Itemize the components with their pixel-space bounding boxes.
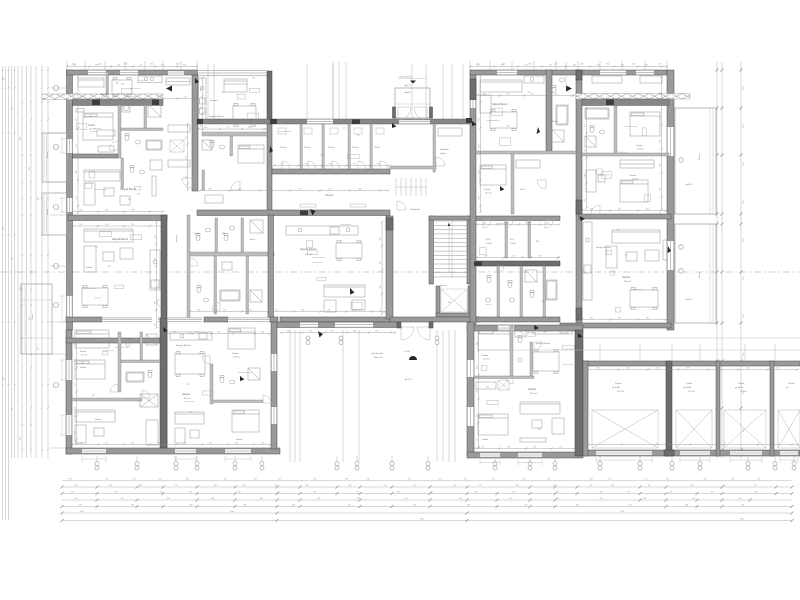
svg-text:213: 213 [585,199,587,202]
svg-text:421: 421 [131,224,134,226]
svg-text:177: 177 [137,400,140,402]
svg-text:106: 106 [357,135,360,137]
svg-text:124: 124 [538,429,541,431]
svg-text:511: 511 [249,310,252,312]
svg-text:357: 357 [556,498,559,500]
svg-text:239: 239 [477,366,479,369]
svg-text:tároló: tároló [440,152,446,155]
svg-text:218: 218 [75,407,77,410]
svg-text:367: 367 [711,491,714,493]
svg-text:396: 396 [585,174,587,177]
svg-text:352: 352 [201,107,203,110]
svg-text:176: 176 [76,197,78,200]
svg-text:WC: WC [222,233,226,235]
svg-text:189: 189 [261,332,264,334]
svg-text:Szoba: Szoba [236,439,243,441]
svg-text:192: 192 [309,331,312,333]
svg-text:171: 171 [226,127,229,129]
svg-text:394: 394 [248,127,251,129]
svg-text:422: 422 [738,498,741,500]
svg-text:372: 372 [507,94,510,96]
svg-text:396: 396 [327,310,330,312]
svg-text:177: 177 [298,189,301,191]
svg-text:307: 307 [648,485,651,487]
svg-text:◆ 0,00: ◆ 0,00 [405,91,411,94]
svg-text:323: 323 [79,443,82,445]
svg-text:273: 273 [183,65,186,67]
svg-text:lejtés 2%: lejtés 2% [374,356,382,359]
svg-text:12,4 m2: 12,4 m2 [483,359,490,361]
svg-text:388: 388 [20,137,22,140]
svg-text:369: 369 [525,223,528,225]
svg-text:389: 389 [486,386,489,388]
svg-text:± 0,00: ± 0,00 [404,351,411,353]
svg-text:507: 507 [155,258,157,261]
svg-text:Konyha Étkező: Konyha Étkező [596,246,611,249]
svg-text:302: 302 [691,485,694,487]
svg-text:537: 537 [268,189,271,191]
svg-text:2985: 2985 [230,511,234,513]
svg-text:Nappali Étkező: Nappali Étkező [209,115,224,118]
svg-text:344: 344 [621,65,624,67]
svg-text:179: 179 [175,485,178,487]
svg-text:265: 265 [173,332,176,334]
svg-text:488: 488 [358,189,361,191]
svg-text:532: 532 [79,504,82,506]
svg-text:142: 142 [479,93,481,96]
svg-text:306: 306 [599,491,602,493]
svg-text:119: 119 [549,65,552,67]
svg-text:324: 324 [238,189,241,191]
svg-text:370: 370 [660,140,662,143]
svg-text:335: 335 [645,65,648,67]
svg-text:139: 139 [353,310,356,312]
svg-text:205: 205 [221,92,224,94]
svg-text:Tároló: Tároló [686,382,693,385]
svg-text:Szoba: Szoba [630,175,637,177]
svg-text:464: 464 [555,94,558,96]
svg-text:242: 242 [585,149,587,152]
svg-text:Terasz: Terasz [699,154,701,160]
svg-text:133: 133 [731,479,734,481]
svg-text:352: 352 [12,257,14,260]
svg-text:330: 330 [353,331,356,333]
svg-text:267: 267 [92,395,95,397]
svg-text:294: 294 [608,479,611,481]
svg-text:467: 467 [646,209,649,211]
svg-text:Nappali: Nappali [182,394,190,396]
svg-text:157: 157 [477,65,480,67]
svg-text:323: 323 [464,479,467,481]
svg-text:312: 312 [743,162,745,166]
svg-text:Nappali: Nappali [528,389,536,391]
svg-text:126: 126 [105,479,108,481]
svg-text:Terasz: Terasz [31,314,34,320]
svg-text:341: 341 [546,223,549,225]
svg-text:177: 177 [343,128,346,130]
svg-text:32,5 m2: 32,5 m2 [305,254,313,256]
svg-text:620: 620 [214,485,217,487]
svg-text:607: 607 [408,479,411,481]
svg-text:376: 376 [741,504,744,506]
svg-text:196: 196 [75,485,78,487]
svg-text:Szoba: Szoba [80,367,87,369]
svg-text:Konyha Étkező: Konyha Étkező [176,344,191,347]
svg-text:147: 147 [209,443,212,445]
svg-text:107: 107 [186,384,189,386]
svg-text:473: 473 [479,485,482,487]
svg-text:552: 552 [611,485,614,487]
svg-text:Szoba: Szoba [88,124,95,127]
svg-text:325: 325 [523,479,526,481]
svg-text:11,8 m2: 11,8 m2 [233,357,239,359]
svg-text:507: 507 [79,224,82,226]
svg-text:191: 191 [524,504,527,506]
svg-text:212: 212 [531,94,534,96]
svg-text:12,6 m2: 12,6 m2 [632,179,639,181]
svg-text:341: 341 [660,116,662,119]
svg-text:172: 172 [105,443,108,445]
svg-text:498: 498 [237,491,240,493]
svg-text:158: 158 [626,368,629,370]
svg-text:173: 173 [492,479,495,481]
svg-text:312: 312 [743,314,745,318]
svg-text:202: 202 [384,485,387,487]
svg-text:◆ 0,00: ◆ 0,00 [686,298,692,301]
svg-text:609: 609 [109,485,112,487]
svg-text:283: 283 [573,65,576,67]
svg-text:439: 439 [507,447,510,449]
svg-text:222: 222 [477,438,479,441]
svg-text:231: 231 [3,77,5,80]
svg-text:316: 316 [73,65,76,67]
svg-text:4402: 4402 [420,518,424,520]
svg-text:366: 366 [76,171,78,174]
svg-text:297: 297 [525,65,528,67]
svg-text:556: 556 [160,491,163,493]
svg-text:312: 312 [743,238,745,242]
svg-text:276: 276 [479,145,481,148]
svg-text:Nappali Étkező: Nappali Étkező [112,238,129,241]
svg-text:236: 236 [618,209,621,211]
svg-text:Tároló: Tároló [352,146,359,149]
svg-text:Mosó: Mosó [250,239,256,241]
svg-text:310: 310 [131,443,134,445]
svg-text:448: 448 [533,447,536,449]
svg-text:Konyha Étkező: Konyha Étkező [536,342,551,345]
svg-text:226: 226 [757,479,760,481]
svg-text:292: 292 [161,65,164,67]
svg-text:142: 142 [541,301,544,303]
svg-text:575: 575 [357,498,360,500]
svg-text:251: 251 [660,92,662,95]
svg-text:452: 452 [75,431,77,434]
svg-text:382: 382 [79,210,82,212]
svg-text:419: 419 [3,227,5,230]
svg-text:Tároló: Tároló [486,243,493,245]
svg-text:471: 471 [331,331,334,333]
svg-text:607: 607 [254,479,257,481]
svg-text:Szoba: Szoba [95,419,102,421]
svg-text:28,4 m2: 28,4 m2 [624,281,632,283]
svg-text:383: 383 [660,164,662,167]
svg-text:432: 432 [223,479,226,481]
svg-text:154: 154 [547,479,550,481]
svg-text:Terasz: Terasz [47,209,49,215]
svg-text:134: 134 [356,491,359,493]
svg-text:gk.: gk. [786,387,789,389]
svg-text:368: 368 [479,197,481,200]
svg-text:505: 505 [483,223,486,225]
svg-text:478: 478 [191,333,194,335]
svg-text:567: 567 [629,504,632,506]
svg-text:124: 124 [512,256,515,258]
svg-text:453: 453 [235,443,238,445]
svg-text:276: 276 [305,164,308,166]
svg-text:24,2 m2: 24,2 m2 [184,398,191,400]
svg-text:325: 325 [117,65,120,67]
svg-text:312: 312 [743,352,745,356]
svg-text:186: 186 [155,302,157,305]
svg-text:172: 172 [217,332,220,334]
svg-text:197: 197 [666,479,669,481]
svg-text:318: 318 [260,498,263,500]
svg-text:180: 180 [477,390,479,393]
svg-text:354: 354 [660,212,662,215]
svg-text:291: 291 [80,97,83,99]
svg-text:224: 224 [287,331,290,333]
svg-text:357: 357 [223,310,226,312]
svg-text:3335: 3335 [80,511,84,513]
svg-text:201: 201 [643,498,646,500]
svg-text:◆ 0,15: ◆ 0,15 [405,378,412,381]
svg-text:459: 459 [329,164,332,166]
svg-text:359: 359 [686,368,689,370]
svg-text:Lift: Lift [448,301,451,304]
svg-text:246: 246 [176,64,180,66]
svg-text:Konyha: Konyha [210,100,218,102]
svg-text:344: 344 [106,97,109,99]
svg-text:394: 394 [197,310,200,312]
svg-text:246: 246 [528,64,532,66]
svg-text:185: 185 [692,498,695,500]
svg-text:159: 159 [320,154,323,156]
svg-text:454: 454 [121,498,124,500]
svg-text:Tároló: Tároló [280,146,287,149]
svg-text:272: 272 [553,485,556,487]
svg-text:225: 225 [413,485,416,487]
svg-text:507: 507 [239,332,242,334]
svg-text:176: 176 [29,167,31,170]
svg-text:183: 183 [477,342,479,345]
svg-text:540: 540 [590,318,593,320]
svg-text:449: 449 [167,498,170,500]
svg-text:365: 365 [348,485,351,487]
svg-text:141: 141 [328,189,331,191]
svg-text:150: 150 [625,254,628,256]
svg-text:Szoba: Szoba [482,439,489,441]
svg-text:Tároló: Tároló [374,146,381,149]
svg-text:297: 297 [559,447,562,449]
svg-text:373: 373 [375,331,378,333]
svg-text:458: 458 [211,498,214,500]
svg-text:◆ 0,15: ◆ 0,15 [405,84,411,87]
svg-text:299: 299 [243,504,246,506]
svg-text:325: 325 [76,119,78,122]
svg-text:566: 566 [576,504,579,506]
svg-text:Szoba: Szoba [636,145,643,147]
svg-text:112: 112 [155,236,157,239]
svg-text:Szoba: Szoba [80,351,87,353]
svg-text:338: 338 [121,84,124,86]
svg-text:15,9 m2: 15,9 m2 [617,391,624,393]
svg-text:246: 246 [658,64,662,66]
svg-text:246: 246 [150,64,154,66]
svg-text:306: 306 [139,485,142,487]
svg-text:407: 407 [29,317,31,320]
svg-text:390: 390 [453,485,456,487]
svg-text:gk. beálló: gk. beálló [683,387,691,389]
svg-text:336: 336 [479,119,481,122]
svg-text:362: 362 [190,504,193,506]
svg-text:389: 389 [467,504,470,506]
svg-text:12,1 m2: 12,1 m2 [81,355,88,357]
svg-text:330: 330 [137,193,140,195]
svg-text:193: 193 [716,368,719,370]
svg-text:408: 408 [158,97,161,99]
svg-text:187: 187 [105,210,108,212]
svg-text:313: 313 [656,368,659,370]
svg-text:Nappali: Nappali [100,93,109,96]
svg-text:WC: WC [536,241,540,243]
svg-text:301: 301 [108,266,111,268]
svg-text:205: 205 [521,257,524,259]
svg-text:246: 246 [606,64,610,66]
svg-text:559: 559 [278,479,281,481]
svg-text:330: 330 [81,362,84,364]
svg-text:271: 271 [183,443,186,445]
svg-text:Kerékpár: Kerékpár [440,148,449,151]
svg-text:524: 524 [404,498,407,500]
svg-text:gk. beálló: gk. beálló [612,387,620,389]
svg-text:437: 437 [95,247,98,249]
svg-text:Nappali Étkező: Nappali Étkező [300,248,317,251]
svg-text:580: 580 [367,479,370,481]
svg-text:336: 336 [157,443,160,445]
svg-text:527: 527 [184,97,187,99]
svg-text:207: 207 [380,261,382,264]
svg-text:242: 242 [189,491,192,493]
svg-text:335: 335 [186,176,188,179]
svg-text:349: 349 [477,414,479,417]
svg-text:±0,00 szint jele: ±0,00 szint jele [399,76,412,79]
svg-text:433: 433 [131,504,134,506]
svg-text:492: 492 [596,368,599,370]
svg-text:120: 120 [75,498,78,500]
svg-text:231: 231 [128,199,131,201]
svg-text:15,9 m2: 15,9 m2 [740,391,747,393]
svg-text:210: 210 [139,65,142,67]
svg-text:523: 523 [660,188,662,191]
svg-text:180: 180 [252,78,255,80]
svg-text:345: 345 [590,479,593,481]
svg-text:222: 222 [277,491,280,493]
svg-text:312: 312 [743,200,745,204]
svg-text:164: 164 [301,310,304,312]
svg-text:536: 536 [776,368,779,370]
svg-text:172: 172 [627,491,630,493]
svg-text:180: 180 [646,318,649,320]
svg-text:116: 116 [12,407,14,410]
svg-text:393: 393 [597,65,600,67]
svg-text:361: 361 [397,491,400,493]
svg-text:400: 400 [292,504,295,506]
svg-text:421: 421 [133,479,136,481]
svg-text:339: 339 [618,318,621,320]
svg-text:314: 314 [528,92,531,94]
svg-text:Terasz: Terasz [47,152,49,158]
svg-text:251: 251 [380,285,382,288]
svg-text:329: 329 [75,359,77,362]
svg-text:486: 486 [617,230,620,232]
svg-text:507: 507 [275,310,278,312]
svg-text:147: 147 [75,383,77,386]
svg-text:246: 246 [124,64,128,66]
svg-text:388: 388 [208,189,211,191]
svg-text:538: 538 [20,437,22,440]
svg-text:220: 220 [669,491,672,493]
svg-text:143: 143 [37,347,39,350]
svg-text:392: 392 [723,485,726,487]
svg-text:420: 420 [483,94,486,96]
svg-text:302: 302 [313,491,316,493]
svg-text:499: 499 [539,256,542,258]
svg-text:Nappali Étkező: Nappali Étkező [492,103,508,106]
svg-text:295: 295 [305,485,308,487]
svg-text:562: 562 [590,485,593,487]
svg-text:397: 397 [485,256,488,258]
svg-text:523: 523 [115,491,118,493]
svg-text:Nappali: Nappali [622,277,630,279]
svg-text:Folyosó: Folyosó [325,195,334,197]
svg-text:164: 164 [459,498,462,500]
svg-text:234: 234 [71,491,74,493]
svg-text:420: 420 [3,377,5,380]
svg-text:449: 449 [132,97,135,99]
svg-text:519: 519 [155,280,157,283]
svg-text:377: 377 [585,124,587,127]
svg-text:371: 371 [186,136,188,139]
svg-text:334: 334 [186,479,189,481]
svg-text:23,9 m2: 23,9 m2 [530,393,537,395]
svg-text:237: 237 [380,237,382,240]
svg-text:127: 127 [348,504,351,506]
svg-text:172: 172 [644,479,647,481]
svg-text:312: 312 [743,86,745,90]
svg-text:5128: 5128 [620,511,624,513]
svg-text:432: 432 [116,82,119,84]
svg-text:423: 423 [479,171,481,174]
svg-text:283: 283 [95,65,98,67]
svg-text:474: 474 [430,491,433,493]
svg-text:426: 426 [201,125,203,128]
svg-text:6-06: 6-06 [486,239,491,241]
svg-text:198: 198 [155,324,157,327]
svg-text:Tároló: Tároló [615,382,622,385]
svg-text:362: 362 [189,411,192,413]
svg-text:367: 367 [243,485,246,487]
svg-text:Tároló: Tároló [510,243,517,245]
